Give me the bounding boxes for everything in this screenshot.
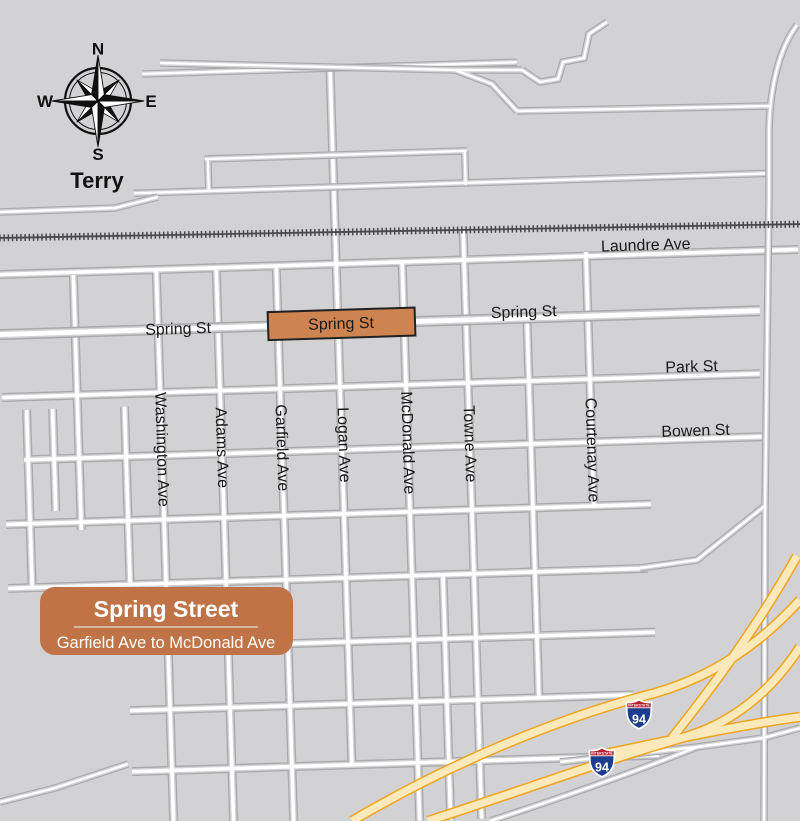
street-label-laundre: Laundre Ave <box>601 236 691 256</box>
street-label-logan: Logan Ave <box>334 407 353 483</box>
street-label-spring-east: Spring St <box>491 303 558 322</box>
street-label-towne: Towne Ave <box>460 405 479 483</box>
shield-system-text: INTERSTATE <box>628 703 650 707</box>
street-label-park: Park St <box>665 358 719 377</box>
street-label-spring-west: Spring St <box>145 320 212 339</box>
map-page: Laundre Ave Spring St Spring St Spring S… <box>0 0 800 821</box>
place-name-terry: Terry <box>70 168 124 193</box>
legend-box: Spring Street Garfield Ave to McDonald A… <box>40 587 293 655</box>
shield-route-number: 94 <box>595 761 609 775</box>
shield-system-text: INTERSTATE <box>591 751 613 755</box>
street-label-garfield: Garfield Ave <box>272 404 292 491</box>
compass-south-label: S <box>92 145 103 164</box>
map-canvas: Laundre Ave Spring St Spring St Spring S… <box>0 0 800 821</box>
street-label-spring-highlight: Spring St <box>308 315 375 334</box>
street-label-washington: Washington Ave <box>151 392 172 507</box>
legend-title: Spring Street <box>94 596 239 622</box>
legend-subtitle: Garfield Ave to McDonald Ave <box>57 634 276 652</box>
shield-route-number: 94 <box>632 713 646 727</box>
compass-west-label: W <box>37 92 54 111</box>
compass-east-label: E <box>145 92 156 111</box>
street-label-courtenay: Courtenay Ave <box>581 397 601 502</box>
street-label-adams: Adams Ave <box>212 407 232 488</box>
compass-north-label: N <box>92 40 104 59</box>
street-label-bowen: Bowen St <box>661 422 731 441</box>
street-label-mcdonald: McDonald Ave <box>397 391 417 494</box>
